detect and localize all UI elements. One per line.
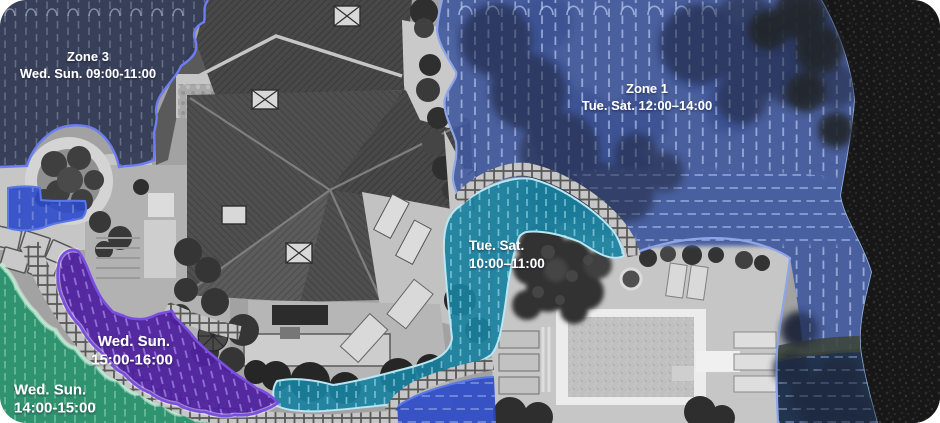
- svg-text:Tue. Sat. 12:00–14:00: Tue. Sat. 12:00–14:00: [582, 98, 713, 113]
- svg-text:Tue. Sat.: Tue. Sat.: [469, 238, 524, 253]
- svg-text:Wed. Sun.: Wed. Sun.: [98, 333, 170, 350]
- svg-text:14:00-15:00: 14:00-15:00: [14, 400, 96, 417]
- svg-text:Wed. Sun.: Wed. Sun.: [14, 382, 86, 399]
- svg-text:Zone 3: Zone 3: [67, 49, 109, 64]
- svg-text:15:00-16:00: 15:00-16:00: [91, 352, 173, 369]
- svg-text:10:00–11:00: 10:00–11:00: [469, 256, 545, 271]
- svg-text:Zone 1: Zone 1: [626, 81, 668, 96]
- svg-text:Wed. Sun. 09:00-11:00: Wed. Sun. 09:00-11:00: [20, 66, 156, 81]
